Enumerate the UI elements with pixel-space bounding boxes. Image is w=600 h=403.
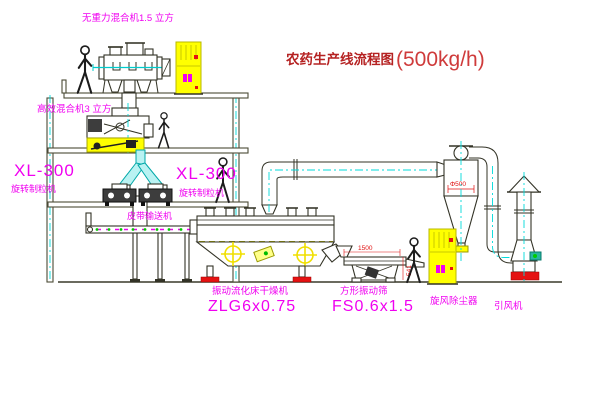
title-capacity: (500kg/h) <box>396 48 485 71</box>
indicator-light <box>194 55 198 59</box>
label-cyclone: 旋风除尘器 <box>430 295 478 307</box>
worker-figure <box>159 113 169 148</box>
floor-slab-3 <box>48 202 248 207</box>
diagram-svg: Φ500 <box>0 0 600 403</box>
label-granulator-right-model: XL-300 <box>176 164 237 183</box>
indicator-light <box>449 238 453 242</box>
platform-post <box>62 80 66 93</box>
cad-flow-diagram: Φ500 <box>0 0 600 403</box>
floor-slab-2 <box>48 148 248 153</box>
label-screen-name: 方形振动筛 <box>340 285 388 297</box>
dryer-nozzles <box>204 208 318 216</box>
label-granulator-left-model: XL-300 <box>14 161 75 180</box>
feed-port <box>110 47 121 55</box>
page-title: 农药生产线流程图(500kg/h) <box>285 48 485 71</box>
label-fan: 引风机 <box>494 300 523 312</box>
drop-pipe <box>122 93 136 110</box>
support-base <box>201 277 219 282</box>
fan-base <box>511 272 539 280</box>
label-granulator-left-name: 旋转制粒机 <box>11 183 56 194</box>
indicator-light <box>450 267 453 270</box>
label-gravity-free-mixer: 无重力混合机1.5 立方 <box>82 12 174 24</box>
screen-length-dim: 1500 <box>358 245 373 252</box>
control-cabinet-top <box>174 42 203 94</box>
discharge-hopper <box>137 80 151 92</box>
control-cabinet-right <box>427 229 458 284</box>
gravity-free-mixer <box>93 43 170 93</box>
cyclone-diameter-dim: Φ500 <box>450 181 466 188</box>
downpipe-centerline <box>493 166 517 258</box>
rotary-valve <box>455 246 468 252</box>
indicator-light <box>195 86 198 89</box>
title-cn: 农药生产线流程图 <box>285 51 394 67</box>
discharge-hopper <box>108 80 122 92</box>
mixer-motor <box>88 119 102 132</box>
label-2f-mixer: 高效混合机3 立方 <box>37 103 111 115</box>
feed-port <box>145 49 153 55</box>
label-screen-model: FS0.6x1.5 <box>332 298 414 315</box>
support-base <box>293 277 311 282</box>
exhaust-duct <box>262 159 459 214</box>
label-dryer-name: 振动流化床干燥机 <box>212 285 289 297</box>
label-granulator-right-name: 旋转制粒机 <box>179 187 224 198</box>
induced-draft-fan <box>507 172 541 282</box>
worker-figure <box>78 46 92 93</box>
label-dryer-model: ZLG6x0.75 <box>208 298 296 315</box>
feed-port <box>127 43 143 55</box>
square-vibrating-screen: 1500 541 <box>336 245 424 282</box>
fluid-bed-dryer <box>190 208 344 282</box>
label-belt-conveyor: 皮带输送机 <box>127 210 172 221</box>
